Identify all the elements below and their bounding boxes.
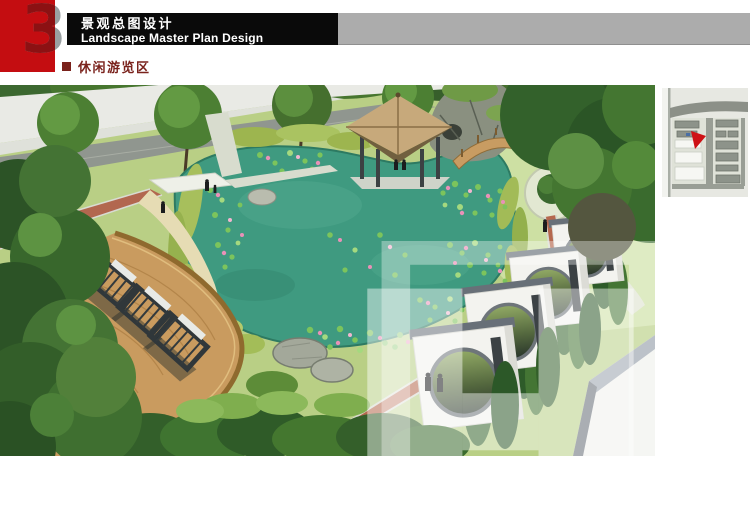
minimap-detail — [686, 133, 690, 136]
page-title-en: Landscape Master Plan Design — [81, 31, 338, 45]
minimap-plan — [662, 88, 748, 197]
minimap-edge — [662, 88, 668, 197]
presentation-page: 3 3 景观总图设计 Landscape Master Plan Design … — [0, 0, 750, 531]
square-bullet-icon — [62, 62, 71, 71]
minimap-road — [672, 184, 744, 189]
title-bar: 景观总图设计 Landscape Master Plan Design — [67, 13, 338, 45]
section-number-clip: 3 — [0, 0, 55, 72]
minimap-building-white — [675, 140, 704, 180]
section-number-badge: 3 3 — [0, 0, 55, 72]
scene-illustration — [0, 85, 655, 456]
minimap-edge-road — [668, 88, 671, 197]
title-bar-extension — [338, 13, 750, 45]
minimap-road — [706, 118, 713, 186]
landscape-render: 君怡景观 LANDSCAPE DESIGN — [0, 85, 655, 456]
minimap-road — [741, 118, 745, 186]
section-subtitle-row: 休闲游览区 — [62, 58, 151, 74]
location-minimap — [662, 88, 748, 197]
section-number: 3 — [21, 0, 55, 66]
section-subtitle: 休闲游览区 — [78, 57, 151, 76]
page-title-cn: 景观总图设计 — [81, 16, 338, 31]
